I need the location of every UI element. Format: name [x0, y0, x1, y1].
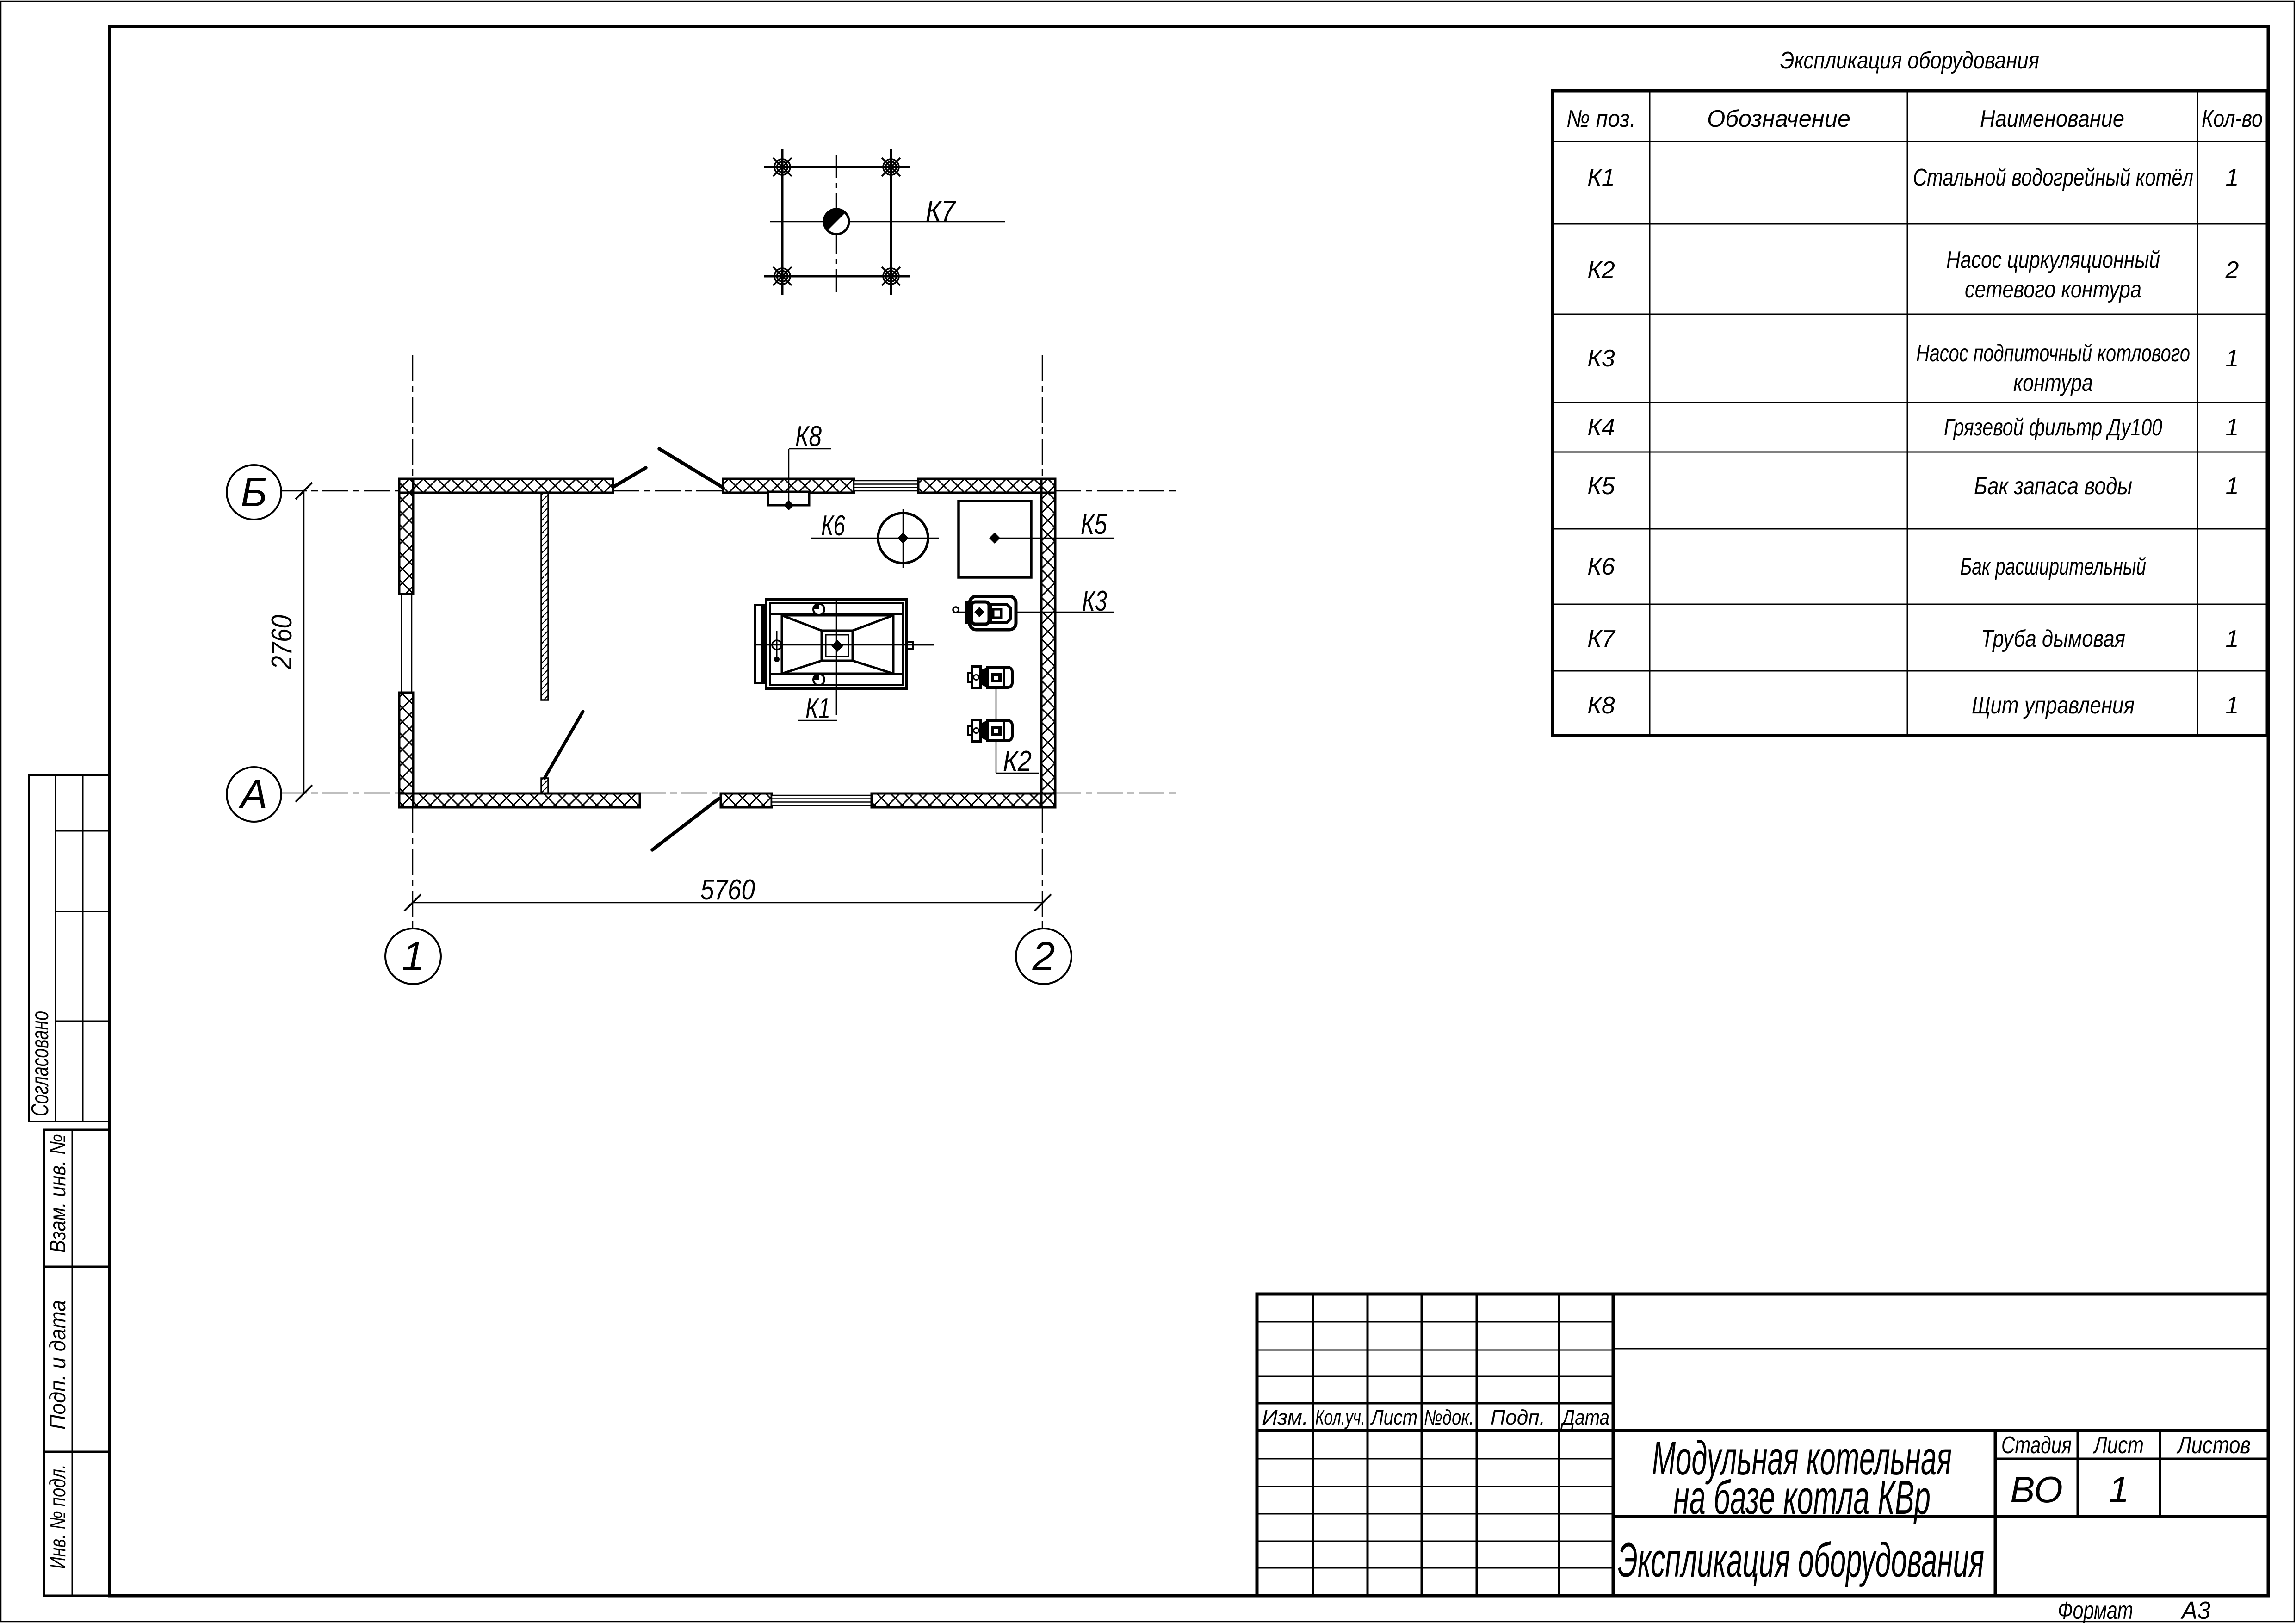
- svg-text:Наименование: Наименование: [1980, 105, 2124, 132]
- svg-text:Труба дымовая: Труба дымовая: [1981, 626, 2125, 652]
- svg-text:Стальной водогрейный котёл: Стальной водогрейный котёл: [1913, 164, 2193, 191]
- svg-text:Б: Б: [241, 469, 267, 515]
- svg-text:1: 1: [402, 933, 425, 979]
- svg-text:1: 1: [2109, 1469, 2129, 1510]
- svg-text:К4: К4: [1587, 414, 1615, 441]
- svg-text:на базе котла КВр: на базе котла КВр: [1673, 1471, 1931, 1524]
- svg-text:К3: К3: [1082, 585, 1107, 617]
- svg-text:К1: К1: [1587, 164, 1615, 191]
- svg-text:Изм.: Изм.: [1262, 1406, 1308, 1429]
- svg-text:Взам. инв. №: Взам. инв. №: [46, 1134, 70, 1253]
- svg-text:К8: К8: [1587, 692, 1615, 719]
- svg-text:К7: К7: [1587, 626, 1616, 652]
- svg-text:Грязевой фильтр Ду100: Грязевой фильтр Ду100: [1944, 414, 2162, 441]
- svg-text:А3: А3: [2180, 1597, 2210, 1623]
- svg-text:2: 2: [2225, 257, 2239, 284]
- svg-text:ВО: ВО: [2010, 1469, 2063, 1510]
- svg-text:Бак запаса воды: Бак запаса воды: [1974, 473, 2132, 500]
- svg-text:Стадия: Стадия: [2001, 1432, 2072, 1459]
- svg-text:Бак расширительный: Бак расширительный: [1960, 553, 2146, 580]
- svg-text:1: 1: [2226, 414, 2239, 441]
- svg-text:№ поз.: № поз.: [1566, 105, 1636, 132]
- svg-text:К2: К2: [1587, 257, 1615, 284]
- svg-text:1: 1: [2226, 692, 2239, 719]
- svg-text:К5: К5: [1081, 508, 1107, 540]
- svg-text:К7: К7: [926, 195, 956, 227]
- svg-text:сетевого контура: сетевого контура: [1965, 276, 2141, 303]
- svg-text:контура: контура: [2013, 370, 2093, 396]
- svg-text:Подп. и дата: Подп. и дата: [46, 1300, 70, 1430]
- svg-text:5760: 5760: [700, 874, 755, 906]
- svg-text:К8: К8: [795, 421, 822, 452]
- svg-text:Листов: Листов: [2176, 1432, 2251, 1459]
- svg-text:А: А: [238, 771, 268, 817]
- svg-text:К1: К1: [805, 693, 830, 725]
- svg-text:2: 2: [1032, 933, 1055, 979]
- svg-text:1: 1: [2226, 473, 2239, 500]
- svg-text:1: 1: [2226, 164, 2239, 191]
- svg-text:Кол-во: Кол-во: [2202, 105, 2263, 132]
- svg-text:Формат: Формат: [2058, 1597, 2133, 1623]
- svg-text:К6: К6: [821, 510, 845, 542]
- svg-text:Щит управления: Щит управления: [1972, 692, 2135, 719]
- svg-text:Насос циркуляционный: Насос циркуляционный: [1946, 247, 2160, 273]
- svg-text:2760: 2760: [266, 615, 298, 670]
- svg-text:Инв. № подл.: Инв. № подл.: [46, 1464, 70, 1569]
- svg-text:Дата: Дата: [1560, 1406, 1609, 1429]
- svg-text:Подп.: Подп.: [1491, 1406, 1545, 1429]
- svg-text:1: 1: [2226, 345, 2239, 372]
- svg-text:Обозначение: Обозначение: [1707, 105, 1850, 132]
- svg-text:Экспликация оборудования: Экспликация оборудования: [1780, 47, 2039, 74]
- svg-text:1: 1: [2226, 626, 2239, 652]
- svg-text:№док.: №док.: [1424, 1406, 1474, 1429]
- svg-text:Экспликация оборудования: Экспликация оборудования: [1618, 1533, 1984, 1587]
- svg-text:Согласовано: Согласовано: [27, 1011, 54, 1116]
- svg-text:К5: К5: [1587, 473, 1615, 500]
- svg-text:Лист: Лист: [2093, 1432, 2144, 1459]
- svg-text:Лист: Лист: [1370, 1406, 1417, 1429]
- svg-text:К3: К3: [1587, 345, 1615, 372]
- svg-text:К2: К2: [1003, 745, 1032, 777]
- svg-text:Кол.уч.: Кол.уч.: [1315, 1406, 1365, 1429]
- svg-text:К6: К6: [1587, 553, 1615, 580]
- svg-text:Насос подпиточный котлового: Насос подпиточный котлового: [1916, 340, 2190, 367]
